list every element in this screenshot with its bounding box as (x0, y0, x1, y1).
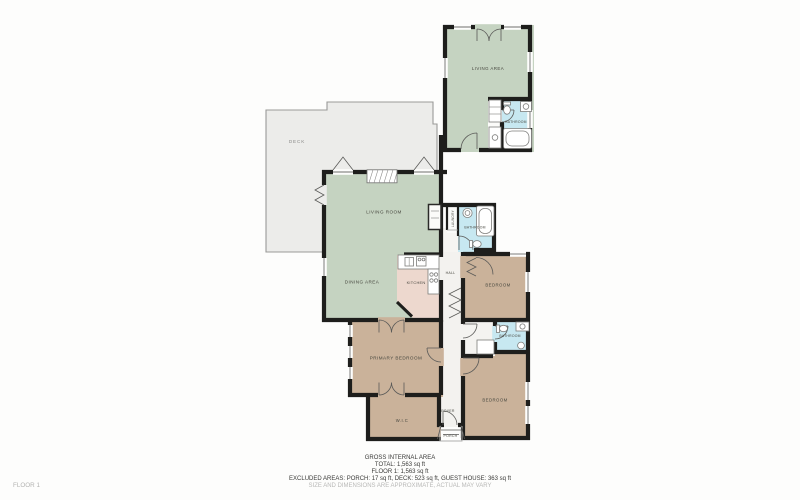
summary-title: GROSS INTERNAL AREA (365, 455, 435, 461)
bathroom-main-label: BATHROOM (464, 226, 485, 230)
laundry-label: LAUNDRY (451, 209, 455, 227)
deck-label: DECK (289, 139, 305, 144)
foyer-label: FOYER (441, 409, 455, 413)
summary-excluded: EXCLUDED AREAS: PORCH: 17 sq ft, DECK: 5… (289, 476, 511, 482)
porch-label: PORCH (444, 434, 458, 438)
bedroom-lower-label: BEDROOM (482, 398, 507, 403)
floor-indicator: FLOOR 1 (13, 482, 40, 489)
guest-bathroom-label: BATHROOM (505, 120, 526, 124)
floor-plan-page: DECK LIVING AREA BATHROOM LIVING ROOM DI… (0, 0, 800, 500)
summary-floor1: FLOOR 1: 1,563 sq ft (371, 469, 428, 475)
guest-living-area-label: LIVING AREA (472, 66, 504, 71)
bedroom-lower-floor (463, 352, 530, 440)
summary-total: TOTAL: 1,563 sq ft (375, 462, 425, 468)
fireplace (367, 170, 397, 183)
bathroom-small-label: BATHROOM (499, 334, 520, 338)
primary-bedroom-label: PRIMARY BEDROOM (370, 356, 423, 361)
wic-label: W.I.C (396, 418, 409, 423)
floor-plan-drawing: DECK LIVING AREA BATHROOM LIVING ROOM DI… (0, 0, 800, 500)
summary-disclaimer: SIZE AND DIMENSIONS ARE APPROXIMATE, ACT… (309, 483, 492, 489)
bedroom-right-label: BEDROOM (485, 283, 510, 288)
kitchen-label: KITCHEN (407, 280, 426, 285)
room-floors (322, 25, 534, 441)
living-room-label: LIVING ROOM (366, 210, 402, 215)
dining-closet (429, 205, 442, 230)
dining-area-label: DINING AREA (345, 280, 380, 285)
area-summary: GROSS INTERNAL AREA TOTAL: 1,563 sq ft F… (289, 455, 511, 489)
hall-label: HALL (446, 271, 456, 275)
